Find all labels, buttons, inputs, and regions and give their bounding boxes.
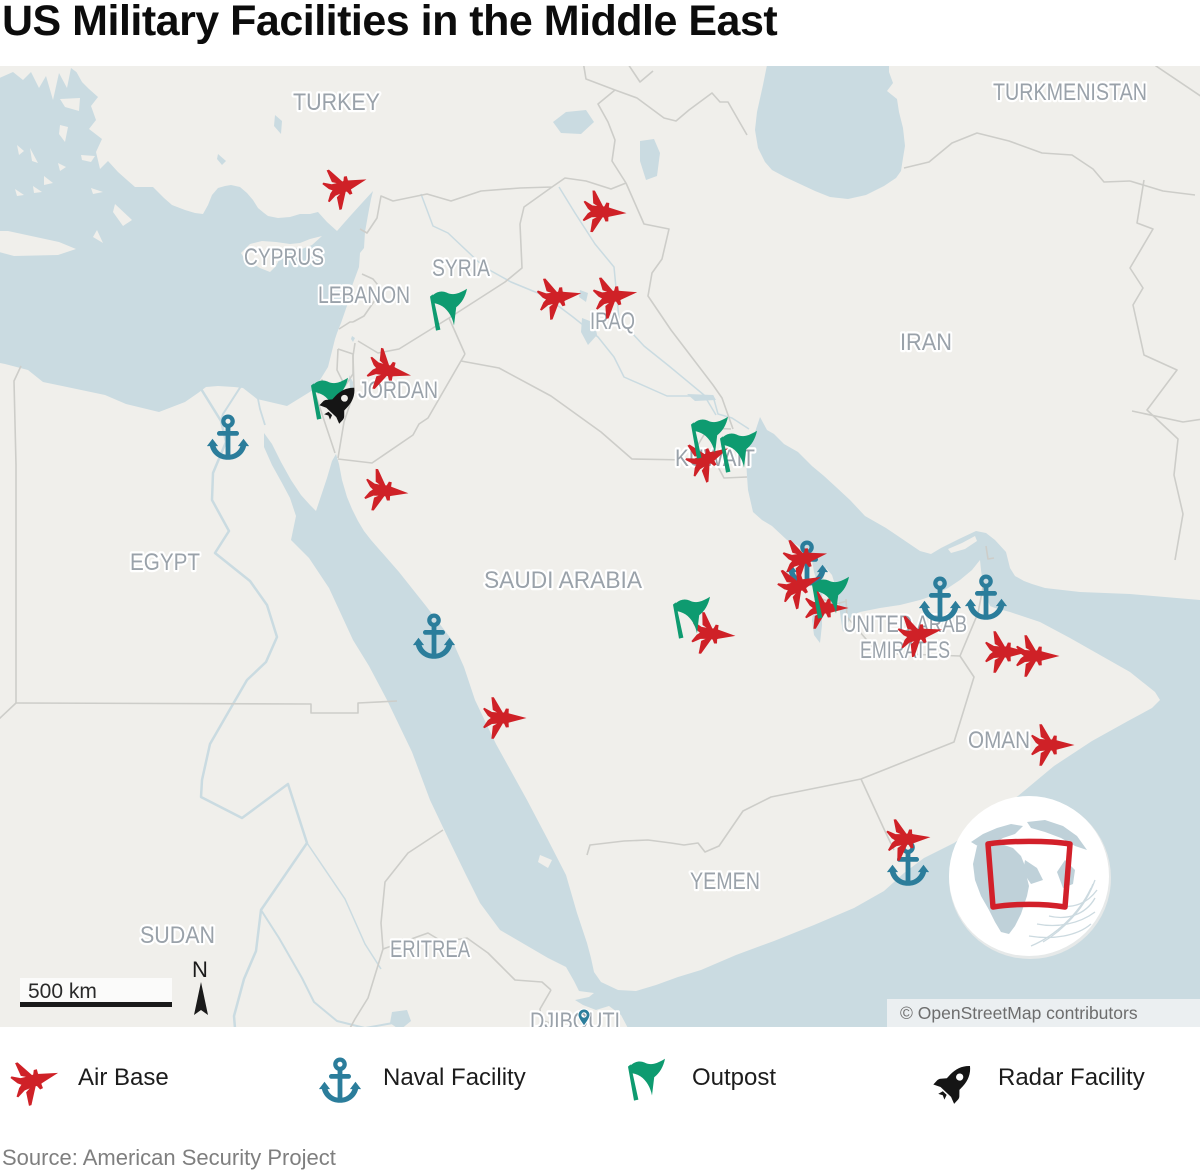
svg-text:JORDAN: JORDAN (358, 377, 438, 404)
svg-text:N: N (192, 957, 208, 982)
svg-text:IRAQ: IRAQ (590, 308, 635, 335)
svg-text:TURKMENISTAN: TURKMENISTAN (993, 79, 1147, 106)
svg-text:OMAN: OMAN (968, 727, 1030, 754)
svg-text:LEBANON: LEBANON (318, 282, 410, 309)
svg-text:SAUDI ARABIA: SAUDI ARABIA (484, 567, 642, 594)
svg-text:© OpenStreetMap contributors: © OpenStreetMap contributors (900, 1003, 1138, 1023)
svg-text:500 km: 500 km (28, 980, 97, 1003)
svg-text:SYRIA: SYRIA (432, 255, 490, 282)
svg-text:SUDAN: SUDAN (140, 922, 215, 949)
svg-text:ERITREA: ERITREA (390, 936, 470, 963)
svg-text:TURKEY: TURKEY (293, 89, 380, 116)
svg-text:CYPRUS: CYPRUS (244, 244, 324, 271)
svg-text:EGYPT: EGYPT (130, 549, 200, 576)
svg-text:IRAN: IRAN (900, 329, 952, 356)
svg-text:DJIBOUTI: DJIBOUTI (530, 1008, 620, 1027)
svg-text:YEMEN: YEMEN (690, 868, 760, 895)
